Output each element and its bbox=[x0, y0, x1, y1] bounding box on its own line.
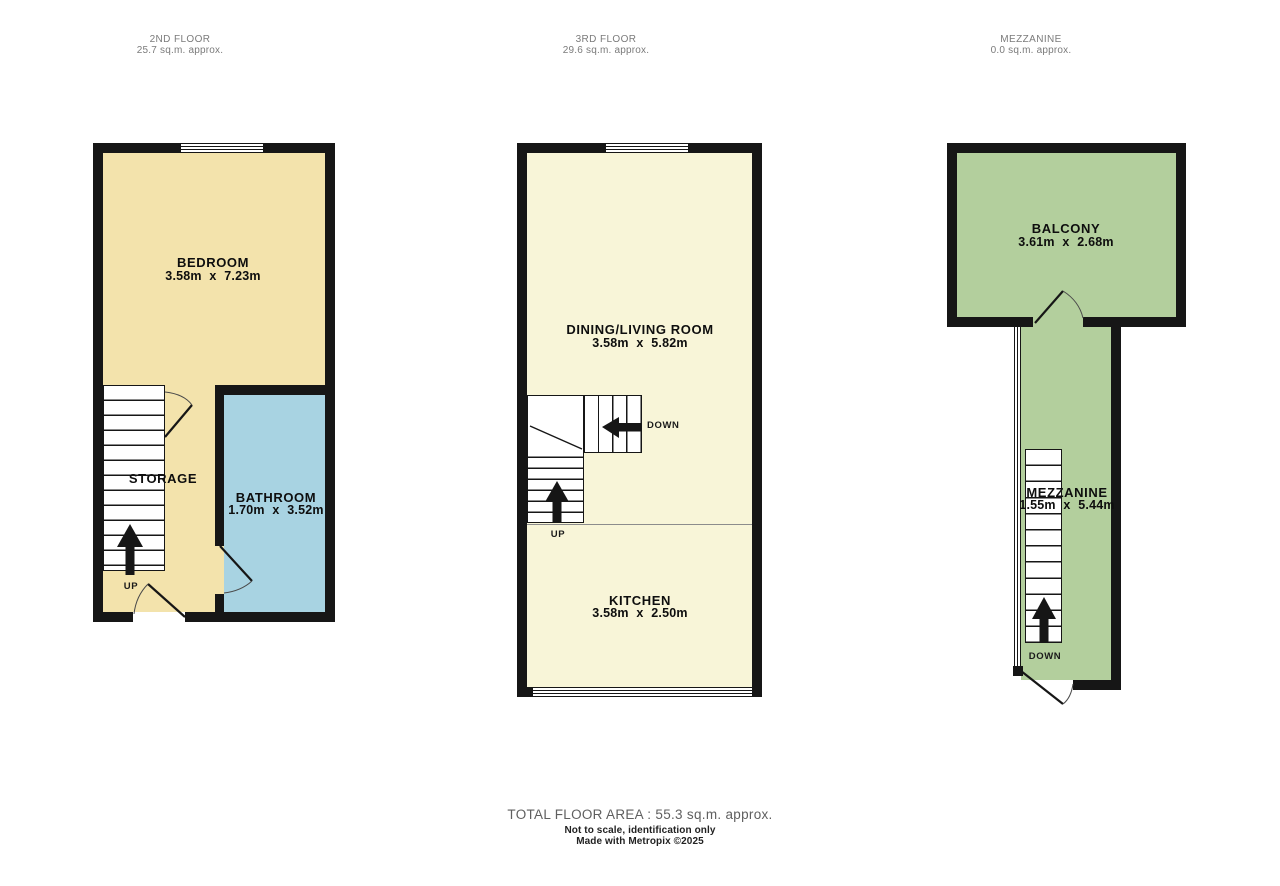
floor-3-header-area: 29.6 sq.m. approx. bbox=[563, 46, 649, 57]
living-room-dims: 3.58m x 5.82m bbox=[592, 337, 687, 351]
stair-treads bbox=[528, 447, 583, 521]
up-label-2nd-floor: UP bbox=[124, 582, 138, 592]
bathroom-left-wall-stub bbox=[215, 594, 224, 612]
mezzanine-bottom-wall bbox=[1073, 680, 1121, 690]
down-label-3rd-floor: DOWN bbox=[647, 421, 679, 431]
storage-label: STORAGE bbox=[129, 472, 197, 486]
staircase-mezzanine bbox=[1025, 449, 1062, 643]
bathroom-top-wall bbox=[215, 385, 325, 395]
down-label-mezzanine: DOWN bbox=[1029, 652, 1061, 662]
window-living-room-top bbox=[606, 143, 688, 153]
mezzanine-exit-door-swing-arc bbox=[1063, 684, 1073, 704]
kitchen-partition-line bbox=[527, 524, 752, 525]
mezzanine-dims: 1.55m x 5.44m bbox=[1019, 499, 1114, 513]
bedroom-dims: 3.58m x 7.23m bbox=[165, 270, 260, 284]
balcony-door-opening bbox=[1033, 317, 1083, 327]
balcony-dims: 3.61m x 2.68m bbox=[1018, 236, 1113, 250]
floor-2-header-area: 25.7 sq.m. approx. bbox=[137, 46, 223, 57]
window-bedroom-top bbox=[181, 143, 263, 153]
kitchen-dims: 3.58m x 2.50m bbox=[592, 607, 687, 621]
up-label-3rd-floor: UP bbox=[551, 530, 565, 540]
staircase-3rd-floor-upper-flight bbox=[584, 395, 642, 453]
staircase-3rd-floor-lower-flight bbox=[527, 395, 584, 523]
mezzanine-bottom-left-stub bbox=[1013, 666, 1023, 676]
credit: Made with Metropix ©2025 bbox=[576, 837, 704, 848]
window-kitchen-bottom bbox=[533, 687, 752, 697]
bathroom-left-wall bbox=[215, 395, 224, 546]
bathroom-dims: 1.70m x 3.52m bbox=[228, 504, 323, 518]
balcony-label: BALCONY bbox=[1032, 222, 1100, 236]
floorplan-canvas: 2ND FLOOR 25.7 sq.m. approx. 3RD FLOOR 2… bbox=[0, 0, 1280, 886]
mezzanine-header-area: 0.0 sq.m. approx. bbox=[991, 46, 1072, 57]
entry-door-opening bbox=[133, 612, 185, 622]
living-room-label: DINING/LIVING ROOM bbox=[566, 323, 713, 337]
bedroom-label: BEDROOM bbox=[177, 256, 249, 270]
total-floor-area: TOTAL FLOOR AREA : 55.3 sq.m. approx. bbox=[507, 808, 772, 823]
